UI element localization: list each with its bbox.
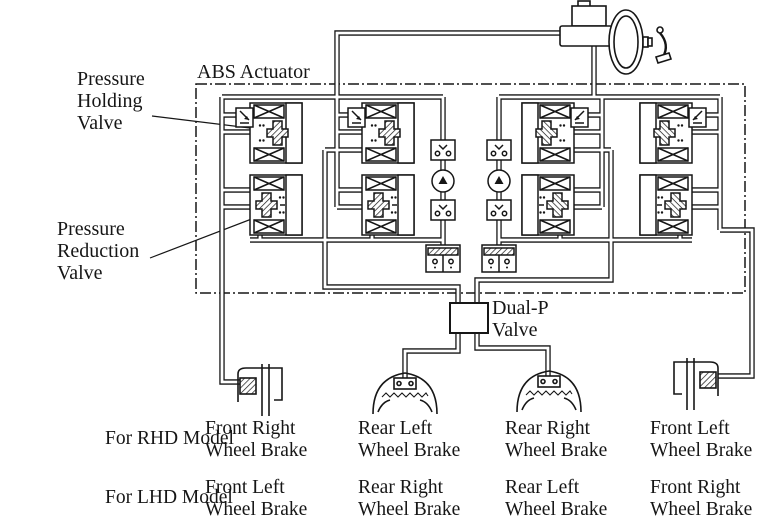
label-line: Pressure [57, 218, 139, 240]
drum-brake-icon [517, 371, 581, 412]
disc-brake-icon [674, 358, 718, 410]
master-cylinder [560, 1, 671, 74]
reduction-valve-leader-line [150, 215, 262, 258]
label-line: Valve [492, 319, 549, 341]
brake-fluid-reservoir-icon [572, 6, 606, 26]
label-line: Wheel Brake [205, 499, 307, 521]
lhd-brake-3: Rear Left Wheel Brake [505, 477, 607, 521]
label-line: Front Right [650, 477, 752, 499]
label-line: Front Right [205, 418, 307, 440]
label-line: Front Left [205, 477, 307, 499]
rhd-brake-3: Rear Right Wheel Brake [505, 418, 607, 462]
label-line: Pressure [77, 68, 145, 90]
check-valve-icon [487, 140, 511, 160]
label-line: Rear Right [358, 477, 460, 499]
label-line: Wheel Brake [205, 440, 307, 462]
rhd-brake-2: Rear Left Wheel Brake [358, 418, 460, 462]
pressure-reduction-valve-icon [362, 175, 414, 235]
check-valve-icon [487, 200, 511, 220]
diagram-canvas: ABS Actuator Pressure Holding Valve Pres… [0, 0, 765, 523]
dual-p-valve-label: Dual-P Valve [492, 297, 549, 341]
rhd-brake-1: Front Right Wheel Brake [205, 418, 307, 462]
label-line: Reduction [57, 240, 139, 262]
label-line: Wheel Brake [358, 440, 460, 462]
check-valve-icon [431, 200, 455, 220]
lhd-brake-2: Rear Right Wheel Brake [358, 477, 460, 521]
pressure-reduction-valve-icon [250, 175, 302, 235]
pressure-reduction-valve-label: Pressure Reduction Valve [57, 218, 139, 284]
lhd-brake-1: Front Left Wheel Brake [205, 477, 307, 521]
label-line: Wheel Brake [358, 499, 460, 521]
check-valve-icon [431, 140, 455, 160]
accumulator-icon [482, 245, 516, 272]
label-line: Valve [57, 262, 139, 284]
label-line: Rear Left [358, 418, 460, 440]
label-line: Wheel Brake [650, 499, 752, 521]
pump-icon [432, 170, 454, 192]
dual-p-valve-box [450, 303, 488, 333]
label-line: Wheel Brake [650, 440, 752, 462]
label-line: Valve [77, 112, 145, 134]
pressure-holding-valve-label: Pressure Holding Valve [77, 68, 145, 134]
pump-icon [488, 170, 510, 192]
label-line: Holding [77, 90, 145, 112]
label-line: Dual-P [492, 297, 549, 319]
pressure-reduction-valve-icon [640, 175, 692, 235]
label-line: Wheel Brake [505, 499, 607, 521]
brake-pedal-icon [656, 27, 671, 63]
drum-brake-icon [373, 373, 437, 414]
disc-brake-icon [238, 364, 282, 416]
lhd-brake-4: Front Right Wheel Brake [650, 477, 752, 521]
master-cylinder-body [560, 26, 612, 46]
pressure-reduction-valve-icon [522, 175, 574, 235]
label-line: Front Left [650, 418, 752, 440]
label-line: Rear Right [505, 418, 607, 440]
label-line: Rear Left [505, 477, 607, 499]
accumulator-icon [426, 245, 460, 272]
label-line: Wheel Brake [505, 440, 607, 462]
rhd-brake-4: Front Left Wheel Brake [650, 418, 752, 462]
abs-actuator-label: ABS Actuator [197, 61, 310, 83]
